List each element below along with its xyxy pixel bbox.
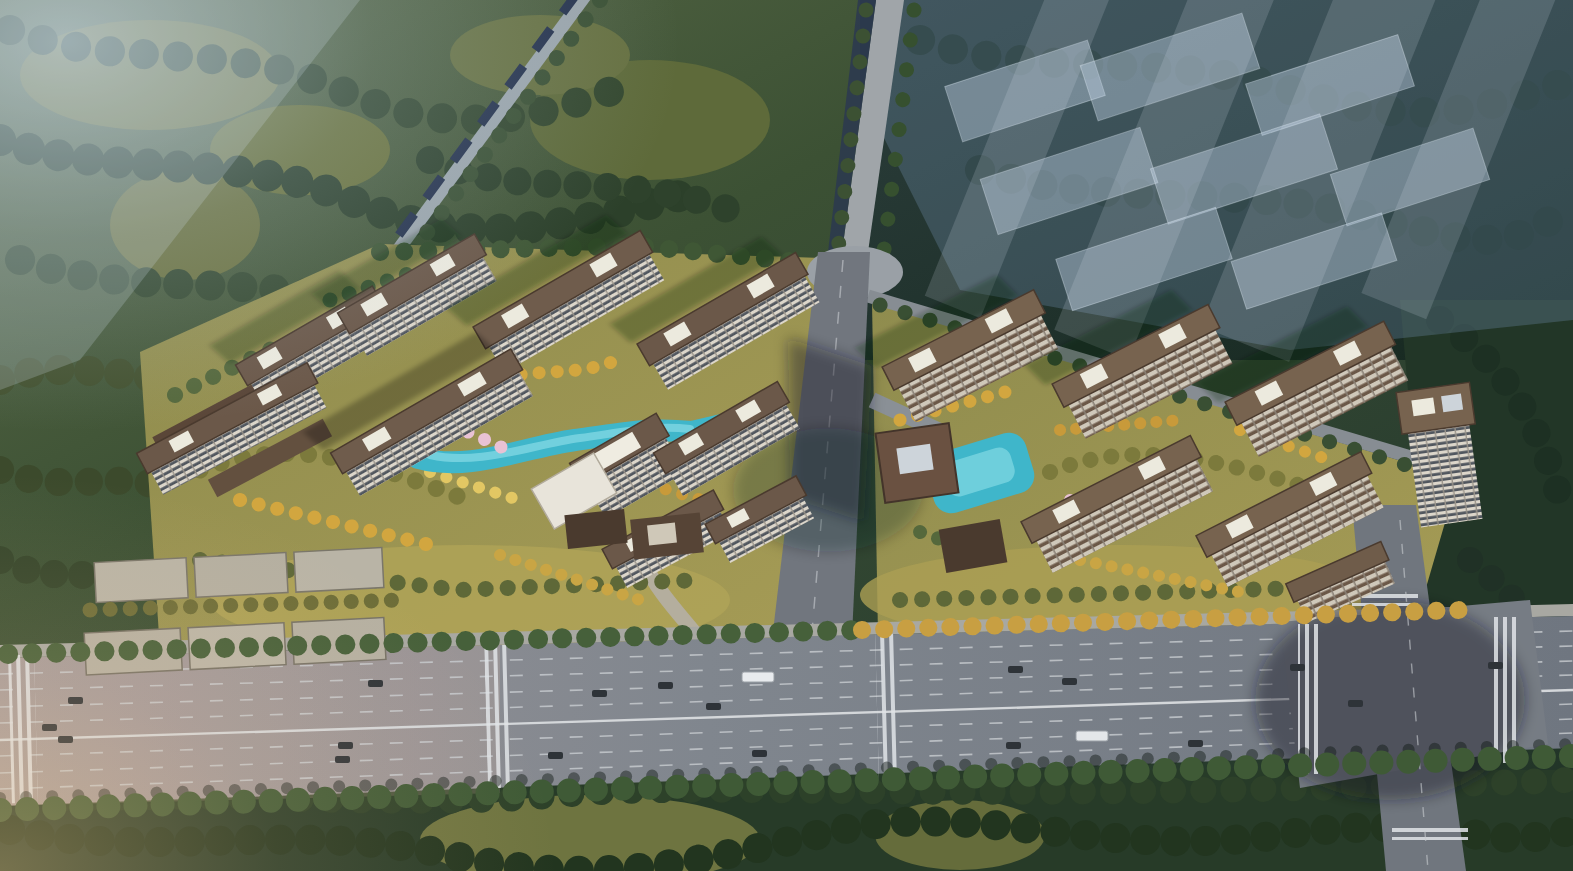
crosswalk-center	[875, 634, 901, 781]
car	[1062, 678, 1077, 685]
car	[1188, 740, 1203, 747]
car	[1348, 700, 1363, 707]
aerial-rendering	[0, 0, 1573, 871]
crosswalk-int-south	[1392, 826, 1468, 840]
car	[752, 750, 767, 757]
car	[1006, 742, 1021, 749]
car	[1290, 664, 1305, 671]
car	[1008, 666, 1023, 673]
car	[1488, 662, 1503, 669]
rendering-canvas	[0, 0, 1573, 871]
warm-glow	[0, 430, 620, 871]
truck	[742, 672, 774, 682]
gate-court	[647, 523, 677, 546]
car	[658, 682, 673, 689]
car	[706, 703, 721, 710]
bus	[1076, 731, 1108, 741]
clubhouse-skylight	[896, 444, 933, 474]
